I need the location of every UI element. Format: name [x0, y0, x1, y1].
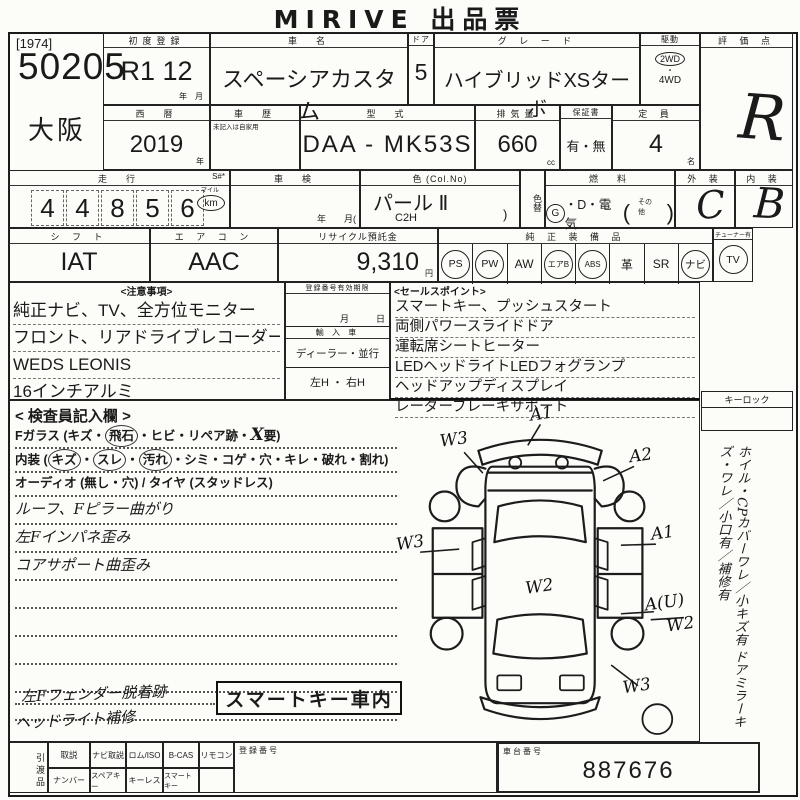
displacement-value: 660	[476, 131, 559, 159]
auction-region: 大阪	[28, 110, 86, 147]
equip-item-エアB: エアB	[542, 244, 576, 284]
fuel-other-label: その他	[638, 197, 659, 217]
history-note: 未記入は自家用	[211, 121, 299, 131]
first-registration-units: 年 月	[179, 91, 203, 102]
sales-point: ヘッドアップディスプレイ	[395, 378, 695, 398]
glass-check-line: Fガラス (キズ・飛石・ヒビ・リペア跡・X要)	[15, 425, 397, 449]
aircon-cell: エ ア コ ン AAC	[150, 228, 278, 282]
drive-other: 4WD	[641, 75, 699, 86]
displacement-unit: cc	[547, 158, 555, 167]
blank-dotted-line	[15, 581, 397, 609]
blank-dotted-line	[15, 609, 397, 637]
reg-expiry-label: 登録番号有効期限	[286, 283, 389, 294]
year-cell: 西 暦 2019 年	[103, 105, 210, 170]
handwritten-x-mark: X	[251, 425, 264, 445]
equip-item-ABS: ABS	[576, 244, 610, 284]
sales-points-label: <セールスポイント>	[391, 283, 699, 298]
equip-item-PW: PW	[473, 244, 507, 284]
notes-cell: <注意事項> 純正ナビ、TV、全方位モニター フロント、リアドライブレコーダー …	[8, 282, 285, 400]
audio-tire-line: オーディオ (無し・穴) / タイヤ (スタッドレス)	[15, 473, 397, 497]
auction-sheet: MIRIVE 出品票 [1974] 50205 大阪 初度登録 R1 12 年 …	[0, 0, 800, 800]
sales-point: スマートキー、プッシュスタート	[395, 298, 695, 318]
fuel-paren-close: )	[667, 200, 674, 226]
equip-item-SR: SR	[645, 244, 679, 284]
handover-number-plate: ナンバー	[48, 768, 90, 793]
handover-smart-key: スマートキー	[163, 768, 199, 793]
handover-side-label: 引渡品	[8, 742, 48, 793]
inspector-hand-note: ルーフ、Fピラー曲がり	[15, 497, 397, 525]
note-line: 純正ナビ、TV、全方位モニター	[13, 298, 280, 325]
wheel	[431, 618, 463, 650]
reg-expiry-units: 月 日	[340, 312, 385, 325]
equip-item-AW: AW	[508, 244, 542, 284]
note-line: フロント、リアドライブレコーダー	[13, 325, 280, 352]
import-value: ディーラー・並行	[286, 339, 389, 368]
door-cell: ドア 5	[408, 32, 434, 105]
color-paren: )	[503, 207, 507, 222]
handover-spare-key: スペアキー	[90, 768, 126, 793]
rear-window	[493, 614, 586, 658]
fuel-gasoline-circled: G	[546, 204, 565, 223]
exterior-score-handwritten: C	[695, 182, 727, 228]
car-name-label: 車 名	[211, 33, 407, 48]
damage-mark-A2: A2	[626, 443, 653, 466]
first-registration-label: 初度登録	[104, 33, 209, 48]
notes-label: <注意事項>	[9, 283, 284, 298]
damage-mark-A1: A1	[648, 521, 675, 544]
fuel-options: ・D・電気	[565, 194, 623, 232]
mileage-label: 走 行	[98, 174, 140, 184]
blank-dotted-line	[15, 637, 397, 665]
circled-sure: スレ	[93, 449, 126, 471]
chassis-number-value: 887676	[499, 757, 758, 785]
shift-value: IAT	[9, 248, 149, 277]
door-label: ドア	[409, 33, 433, 46]
aircon-value: AAC	[151, 248, 277, 277]
drive-selected-circled: 2WD	[655, 52, 685, 66]
sales-points-cell: <セールスポイント> スマートキー、プッシュスタート 両側パワースライドドア 運…	[390, 282, 700, 400]
wheel	[615, 492, 645, 522]
keylock-box: キーロック	[701, 391, 793, 431]
equipment-cell: 純 正 装 備 品 PSPWAWエアBABS革SRナビ	[438, 228, 713, 282]
mileage-digit: 6	[171, 190, 204, 226]
recycle-fee-unit: 円	[425, 268, 433, 279]
circled-yogore: 汚れ	[139, 449, 172, 471]
recycle-fee-cell: リサイクル預託金 9,310 円	[278, 228, 438, 282]
interior-check-line: 内装 (キズ・スレ・汚れ・シミ・コゲ・穴・キレ・破れ・割れ)	[15, 449, 397, 473]
warranty-value: 有・無	[561, 136, 611, 155]
recycle-fee-value: 9,310	[279, 248, 437, 277]
shaken-cell: 車 検 年 月(	[230, 170, 360, 228]
color-label: 色 (Col.No)	[361, 171, 519, 186]
equipment-label: 純 正 装 備 品	[439, 229, 712, 244]
year-unit: 年	[196, 156, 204, 167]
equip-item-ナビ: ナビ	[679, 244, 712, 284]
shaken-units: 年 月(	[317, 212, 356, 225]
mileage-cell: 走 行 S#* 44856 マイル km	[8, 170, 230, 228]
aircon-label: エ ア コ ン	[151, 229, 277, 244]
handover-remote: リモコン	[199, 742, 234, 768]
blank-dotted-line	[15, 703, 215, 705]
handover-keyless: キーレス	[126, 768, 163, 793]
drive-label: 駆動	[641, 33, 699, 46]
wheel	[430, 492, 460, 522]
registration-number-cell: 登録番号	[234, 742, 497, 793]
shift-label: シ フ ト	[9, 229, 149, 244]
score-label: 評 価 点	[701, 33, 792, 48]
equip-item-PS: PS	[439, 244, 473, 284]
warranty-label: 保証書	[561, 106, 611, 119]
color-change-cell: 色替	[520, 170, 545, 228]
first-registration-value: R1 12	[104, 56, 209, 87]
fuel-cell: 燃 料 G ・D・電気 ( その他 )	[545, 170, 675, 228]
history-cell: 車 歴 未記入は自家用	[210, 105, 300, 170]
drive-separator: ・	[641, 67, 699, 75]
history-label: 車 歴	[211, 106, 299, 121]
damage-mark-W3: W3	[438, 427, 469, 451]
mileage-digit: 4	[31, 190, 64, 226]
model-code-label: 型 式	[301, 106, 474, 121]
recycle-fee-label: リサイクル預託金	[279, 229, 437, 244]
equipment-row: PSPWAWエアBABS革SRナビ	[439, 244, 712, 284]
mileage-s-label: S#*	[212, 172, 225, 181]
displacement-cell: 排気量 660 cc	[475, 105, 560, 170]
wheel	[612, 618, 644, 650]
page-title: MIRIVE 出品票	[0, 0, 800, 36]
tuner-tv-circled: TV	[719, 245, 748, 274]
side-vertical-notes: ホイル・CPカバーワレ／小キズ有 ドアミラーキズ・ワレ／小口有／補修有	[709, 445, 750, 738]
first-registration-cell: 初度登録 R1 12 年 月	[103, 32, 210, 105]
inspector-stamp-circle	[642, 704, 672, 734]
damage-mark-A(U): A(U)	[641, 589, 685, 615]
interior-score-cell: 内 装 B	[735, 170, 793, 228]
grade-label: グ レ ー ド	[435, 33, 639, 48]
keylock-label: キーロック	[702, 392, 792, 408]
circled-kizu: キズ	[48, 449, 81, 471]
damage-mark-W3: W3	[621, 673, 652, 697]
color-code: C2H	[395, 212, 417, 224]
capacity-label: 定 員	[613, 106, 699, 121]
rear-bumper	[480, 697, 599, 719]
warranty-cell: 保証書 有・無	[560, 105, 612, 170]
handover-navi-manual: ナビ取説	[90, 742, 126, 768]
fuel-label: 燃 料	[546, 171, 674, 186]
windshield	[494, 500, 585, 542]
color-cell: 色 (Col.No) パール Ⅱ C2H )	[360, 170, 520, 228]
mileage-digit: 8	[101, 190, 134, 226]
tuner-cell: チューナー有 TV	[713, 228, 753, 282]
handle-value: 左H ・ 右H	[286, 368, 389, 396]
mileage-digit: 4	[66, 190, 99, 226]
equip-item-革: 革	[610, 244, 644, 284]
model-code-value: DAA - MK53S	[301, 131, 474, 159]
capacity-unit: 名	[687, 156, 695, 167]
grade-cell: グ レ ー ド ハイブリッドXSターボ	[434, 32, 640, 105]
note-line: WEDS LEONIS	[13, 352, 280, 379]
score-value-handwritten: R	[737, 79, 789, 155]
mileage-digit: 5	[136, 190, 169, 226]
tuner-label: チューナー有	[714, 229, 752, 240]
year-value: 2019	[104, 131, 209, 159]
damage-mark-W2: W2	[524, 574, 555, 598]
mileage-mile-label: マイル	[201, 185, 219, 194]
shift-cell: シ フ ト IAT	[8, 228, 150, 282]
handover-manual: 取説	[48, 742, 90, 768]
inspector-box: < 検査員記入欄 > Fガラス (キズ・飛石・ヒビ・リペア跡・X要) 内装 (キ…	[8, 400, 700, 742]
displacement-label: 排気量	[476, 106, 559, 121]
damage-mark-A1: A1	[526, 403, 553, 425]
registration-number-label: 登録番号	[235, 743, 496, 756]
inspector-hand-note: 左Fインパネ歪み	[15, 525, 397, 553]
circled-tobiishi: 飛石	[105, 425, 138, 447]
chassis-number-label: 車台番号	[499, 744, 758, 757]
sales-point: LEDヘッドライトLEDフォグランプ	[395, 358, 695, 378]
sales-point: 両側パワースライドドア	[395, 318, 695, 338]
car-name-cell: 車 名 スペーシアカスタム	[210, 32, 408, 105]
drive-cell: 駆動 2WD ・ 4WD	[640, 32, 700, 105]
mileage-km-circled: km	[197, 195, 225, 211]
middle-column-cell: 登録番号有効期限 月 日 輸 入 車 ディーラー・並行 左H ・ 右H	[285, 282, 390, 400]
year-label: 西 暦	[104, 106, 209, 121]
front-bumper	[478, 440, 601, 451]
fuel-paren-open: (	[623, 200, 630, 226]
handover-bcas: B-CAS	[163, 742, 199, 768]
car-damage-diagram: A1W3A2W3A1W2A(U)W2W3	[391, 403, 709, 741]
chassis-number-cell: 車台番号 887676	[497, 742, 760, 793]
sales-point: 運転席シートヒーター	[395, 338, 695, 358]
damage-mark-W3: W3	[395, 530, 426, 554]
smart-key-boxed-note: スマートキー車内	[216, 681, 402, 715]
exterior-score-cell: 外 装 C	[675, 170, 735, 228]
interior-score-handwritten: B	[753, 178, 786, 229]
handover-rom-iso: ロム/ISO	[126, 742, 163, 768]
capacity-cell: 定 員 4 名	[612, 105, 700, 170]
model-code-cell: 型 式 DAA - MK53S	[300, 105, 475, 170]
door-value: 5	[409, 59, 433, 86]
damage-mark-W2: W2	[665, 612, 696, 636]
capacity-value: 4	[613, 130, 699, 159]
import-label: 輸 入 車	[286, 327, 389, 339]
inspector-hand-note: コアサポート曲歪み	[15, 553, 397, 581]
left-mirror	[456, 467, 485, 507]
shaken-label: 車 検	[231, 171, 359, 186]
score-cell: 評 価 点 R	[700, 32, 793, 170]
handover-empty-cell	[199, 768, 234, 793]
side-note-wheel: ホイル・CPカバーワレ／小キズ有	[731, 445, 750, 646]
